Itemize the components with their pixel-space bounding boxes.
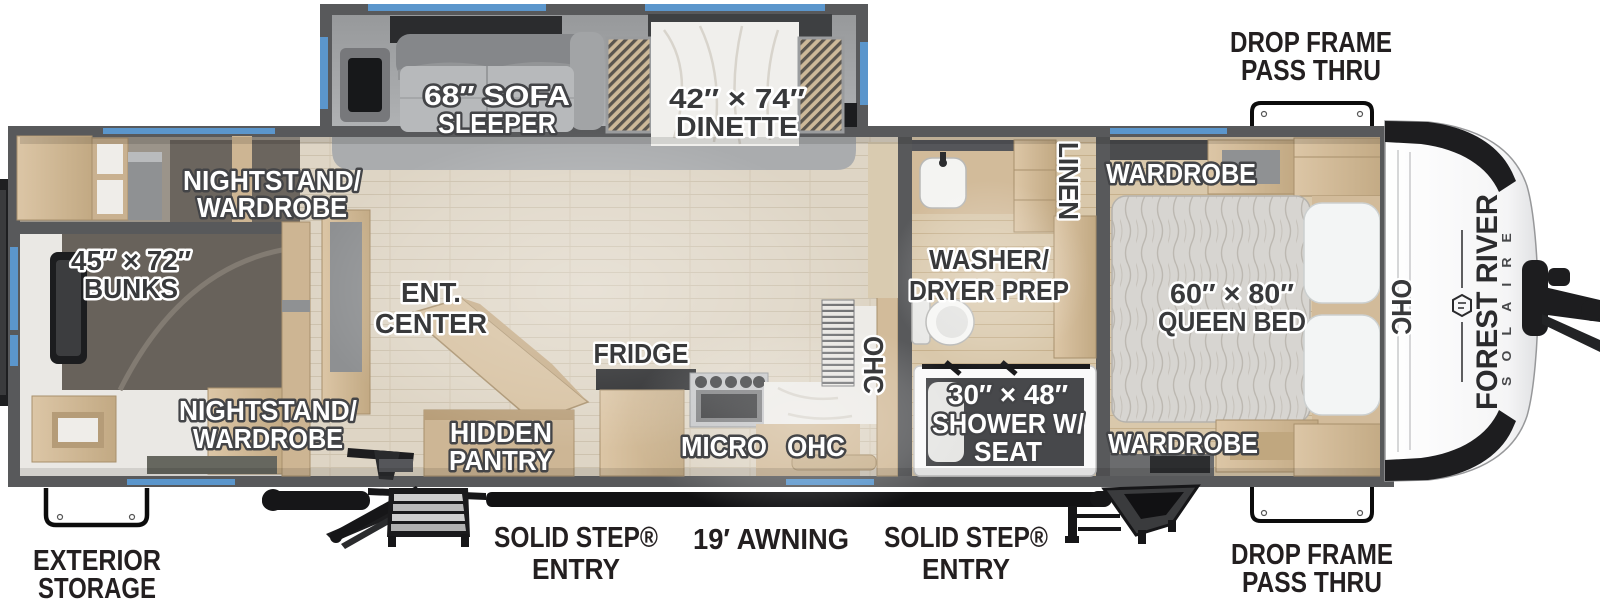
svg-text:SOLID STEP®: SOLID STEP®	[884, 522, 1048, 554]
svg-text:OHC: OHC	[1386, 279, 1417, 335]
svg-text:OHC: OHC	[858, 336, 889, 394]
svg-text:CENTER: CENTER	[375, 308, 487, 339]
svg-text:SHOWER W/: SHOWER W/	[932, 408, 1084, 439]
svg-text:45″ × 72″: 45″ × 72″	[71, 245, 191, 276]
svg-text:FRIDGE: FRIDGE	[594, 338, 689, 369]
svg-text:QUEEN BED: QUEEN BED	[1158, 306, 1306, 337]
svg-text:ENTRY: ENTRY	[922, 554, 1010, 586]
svg-text:NIGHTSTAND/: NIGHTSTAND/	[179, 395, 357, 426]
svg-text:68″ SOFA: 68″ SOFA	[424, 80, 570, 111]
svg-text:WASHER/: WASHER/	[929, 244, 1049, 275]
svg-text:WARDROBE: WARDROBE	[197, 192, 347, 223]
svg-text:PANTRY: PANTRY	[449, 445, 553, 476]
svg-text:42″ × 74″: 42″ × 74″	[669, 83, 805, 114]
svg-text:WARDROBE: WARDROBE	[193, 423, 343, 454]
svg-text:SOLAIRE: SOLAIRE	[1499, 218, 1514, 386]
svg-text:DRYER PREP: DRYER PREP	[909, 275, 1069, 306]
svg-text:PASS THRU: PASS THRU	[1242, 567, 1382, 599]
svg-text:ENTRY: ENTRY	[532, 554, 620, 586]
svg-text:BUNKS: BUNKS	[84, 273, 178, 304]
svg-text:PASS THRU: PASS THRU	[1241, 55, 1381, 87]
svg-text:SOLID STEP®: SOLID STEP®	[494, 522, 658, 554]
svg-text:30″ × 48″: 30″ × 48″	[948, 379, 1068, 410]
svg-text:60″ × 80″: 60″ × 80″	[1170, 278, 1294, 309]
svg-text:LINEN: LINEN	[1053, 142, 1084, 220]
svg-text:WARDROBE: WARDROBE	[1106, 158, 1256, 189]
svg-text:MICRO: MICRO	[681, 431, 767, 462]
svg-text:19′ AWNING: 19′ AWNING	[693, 524, 849, 556]
svg-text:ENT.: ENT.	[401, 277, 461, 308]
svg-text:SEAT: SEAT	[974, 436, 1042, 467]
svg-text:STORAGE: STORAGE	[38, 573, 156, 605]
svg-text:HIDDEN: HIDDEN	[450, 417, 552, 448]
svg-text:OHC: OHC	[787, 431, 845, 462]
svg-text:SLEEPER: SLEEPER	[438, 108, 556, 139]
svg-text:WARDROBE: WARDROBE	[1108, 428, 1258, 459]
svg-text:DINETTE: DINETTE	[676, 111, 798, 142]
